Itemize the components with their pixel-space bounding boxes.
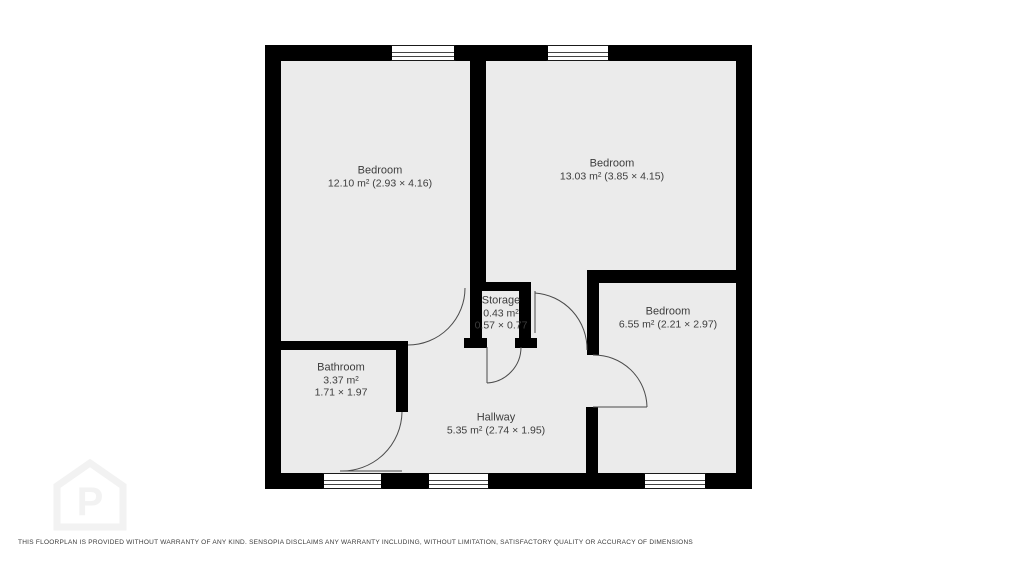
svg-text:P: P	[77, 480, 104, 524]
wall-storage-right-stub	[515, 338, 537, 348]
house-p-logo-icon: P	[53, 459, 127, 531]
window-bedroom1	[390, 45, 456, 61]
wall-bedroom3-left-upper	[587, 270, 599, 355]
wall-bathroom-right	[396, 341, 408, 412]
wall-storage-left-stub	[464, 338, 487, 348]
room-name: Storage	[475, 294, 528, 307]
room-dimensions: 12.10 m² (2.93 × 4.16)	[328, 177, 432, 190]
window-bedroom2	[546, 45, 610, 61]
room-dimensions: 0.57 × 0.77	[475, 319, 528, 332]
disclaimer-text: THIS FLOORPLAN IS PROVIDED WITHOUT WARRA…	[18, 539, 693, 546]
window-bedroom3	[643, 473, 707, 489]
room-label-bedroom-1: Bedroom 12.10 m² (2.93 × 4.16)	[328, 165, 432, 190]
wall-storage-top	[470, 282, 531, 291]
room-name: Bedroom	[619, 306, 717, 319]
room-dimensions: 5.35 m² (2.74 × 1.95)	[447, 424, 545, 437]
room-name: Bathroom	[315, 361, 368, 374]
room-dimensions: 1.71 × 1.97	[315, 386, 368, 399]
wall-bedroom3-top	[587, 270, 736, 283]
room-label-storage: Storage 0.43 m² 0.57 × 0.77	[475, 294, 528, 332]
window-glass	[548, 52, 608, 57]
wall-bathroom-top	[281, 341, 408, 350]
window-glass	[429, 480, 488, 485]
room-label-bathroom: Bathroom 3.37 m² 1.71 × 1.97	[315, 361, 368, 399]
room-dimensions: 13.03 m² (3.85 × 4.15)	[560, 170, 664, 183]
room-area: 0.43 m²	[475, 307, 528, 320]
window-glass	[324, 480, 381, 485]
floorplan-canvas: Bedroom 12.10 m² (2.93 × 4.16) Bedroom 1…	[0, 0, 1024, 576]
room-name: Hallway	[447, 412, 545, 425]
room-label-bedroom-3: Bedroom 6.55 m² (2.21 × 2.97)	[619, 306, 717, 331]
room-label-bedroom-2: Bedroom 13.03 m² (3.85 × 4.15)	[560, 158, 664, 183]
room-area: 3.37 m²	[315, 374, 368, 387]
window-glass	[392, 52, 454, 57]
window-hallway	[427, 473, 490, 489]
room-dimensions: 6.55 m² (2.21 × 2.97)	[619, 318, 717, 331]
wall-bedroom3-left-lower	[586, 407, 598, 473]
room-name: Bedroom	[560, 158, 664, 171]
wall-bedroom-divider	[470, 61, 486, 283]
window-glass	[645, 480, 705, 485]
room-name: Bedroom	[328, 165, 432, 178]
window-bathroom	[322, 473, 383, 489]
room-label-hallway: Hallway 5.35 m² (2.74 × 1.95)	[447, 412, 545, 437]
